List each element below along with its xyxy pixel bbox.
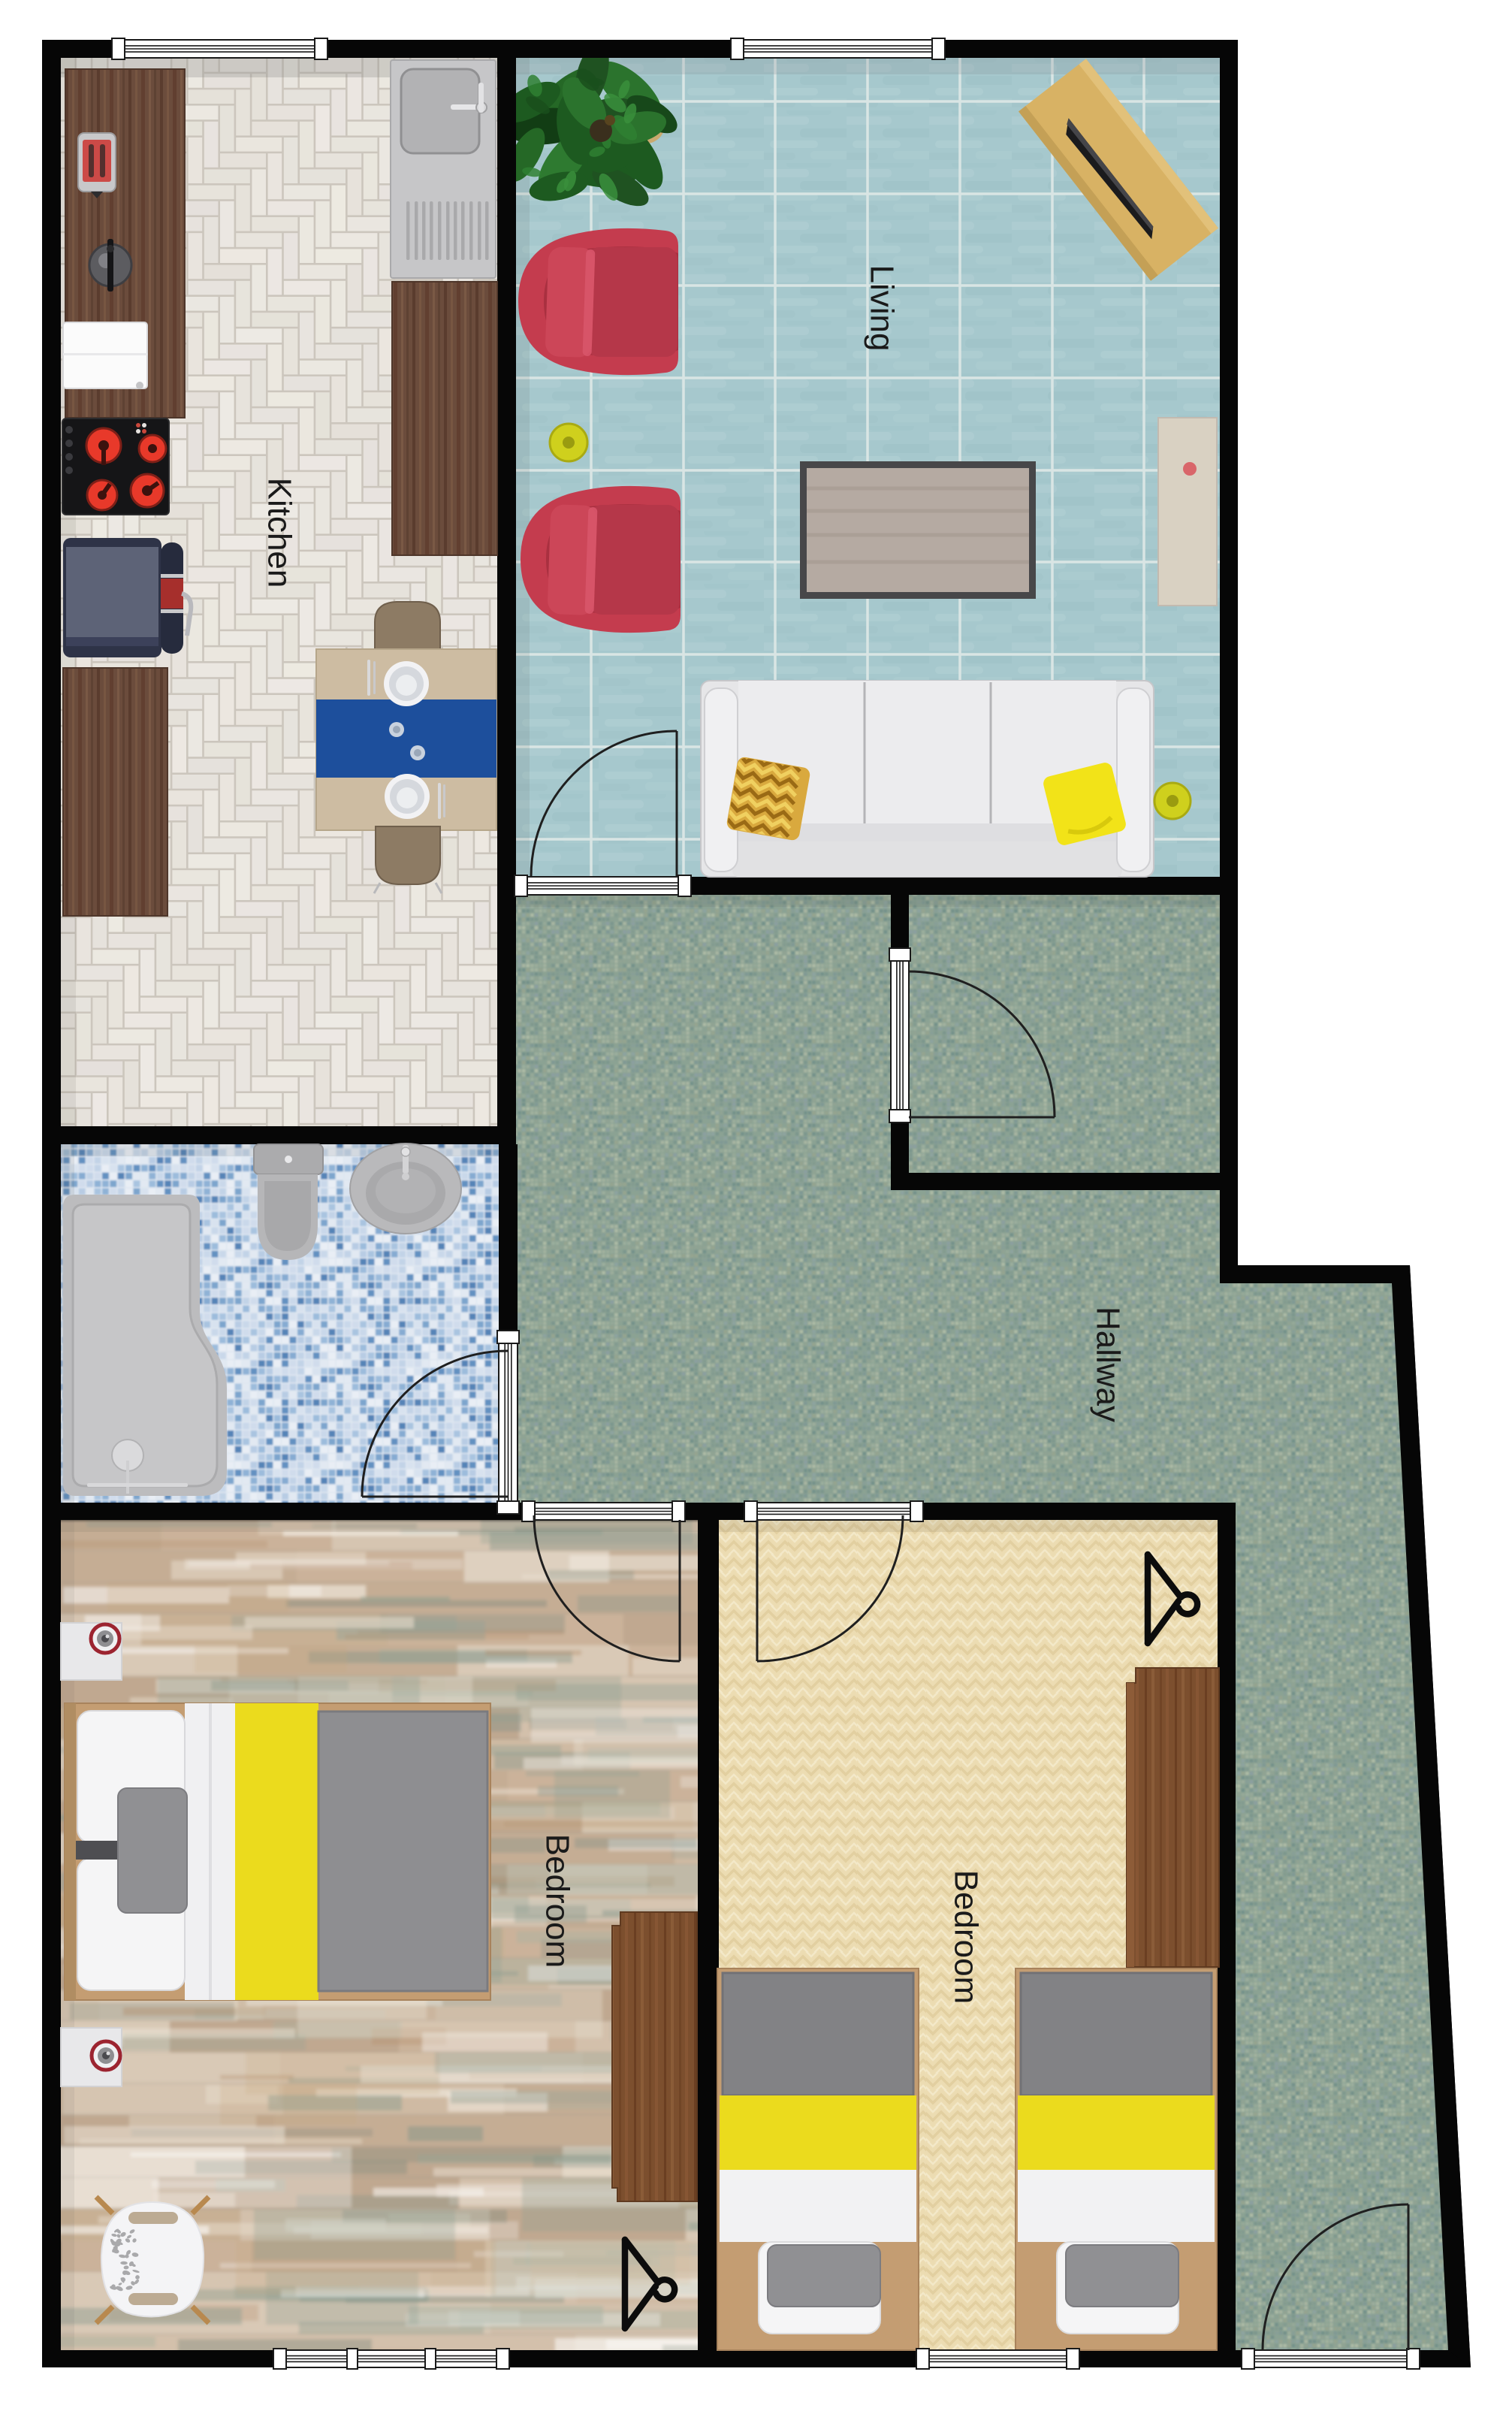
svg-text:Bedroom: Bedroom: [947, 1870, 984, 2005]
svg-text:Living: Living: [863, 265, 900, 352]
svg-text:Hallway: Hallway: [1089, 1307, 1126, 1422]
svg-text:Kitchen: Kitchen: [261, 478, 297, 588]
svg-text:Bedroom: Bedroom: [539, 1834, 575, 1968]
